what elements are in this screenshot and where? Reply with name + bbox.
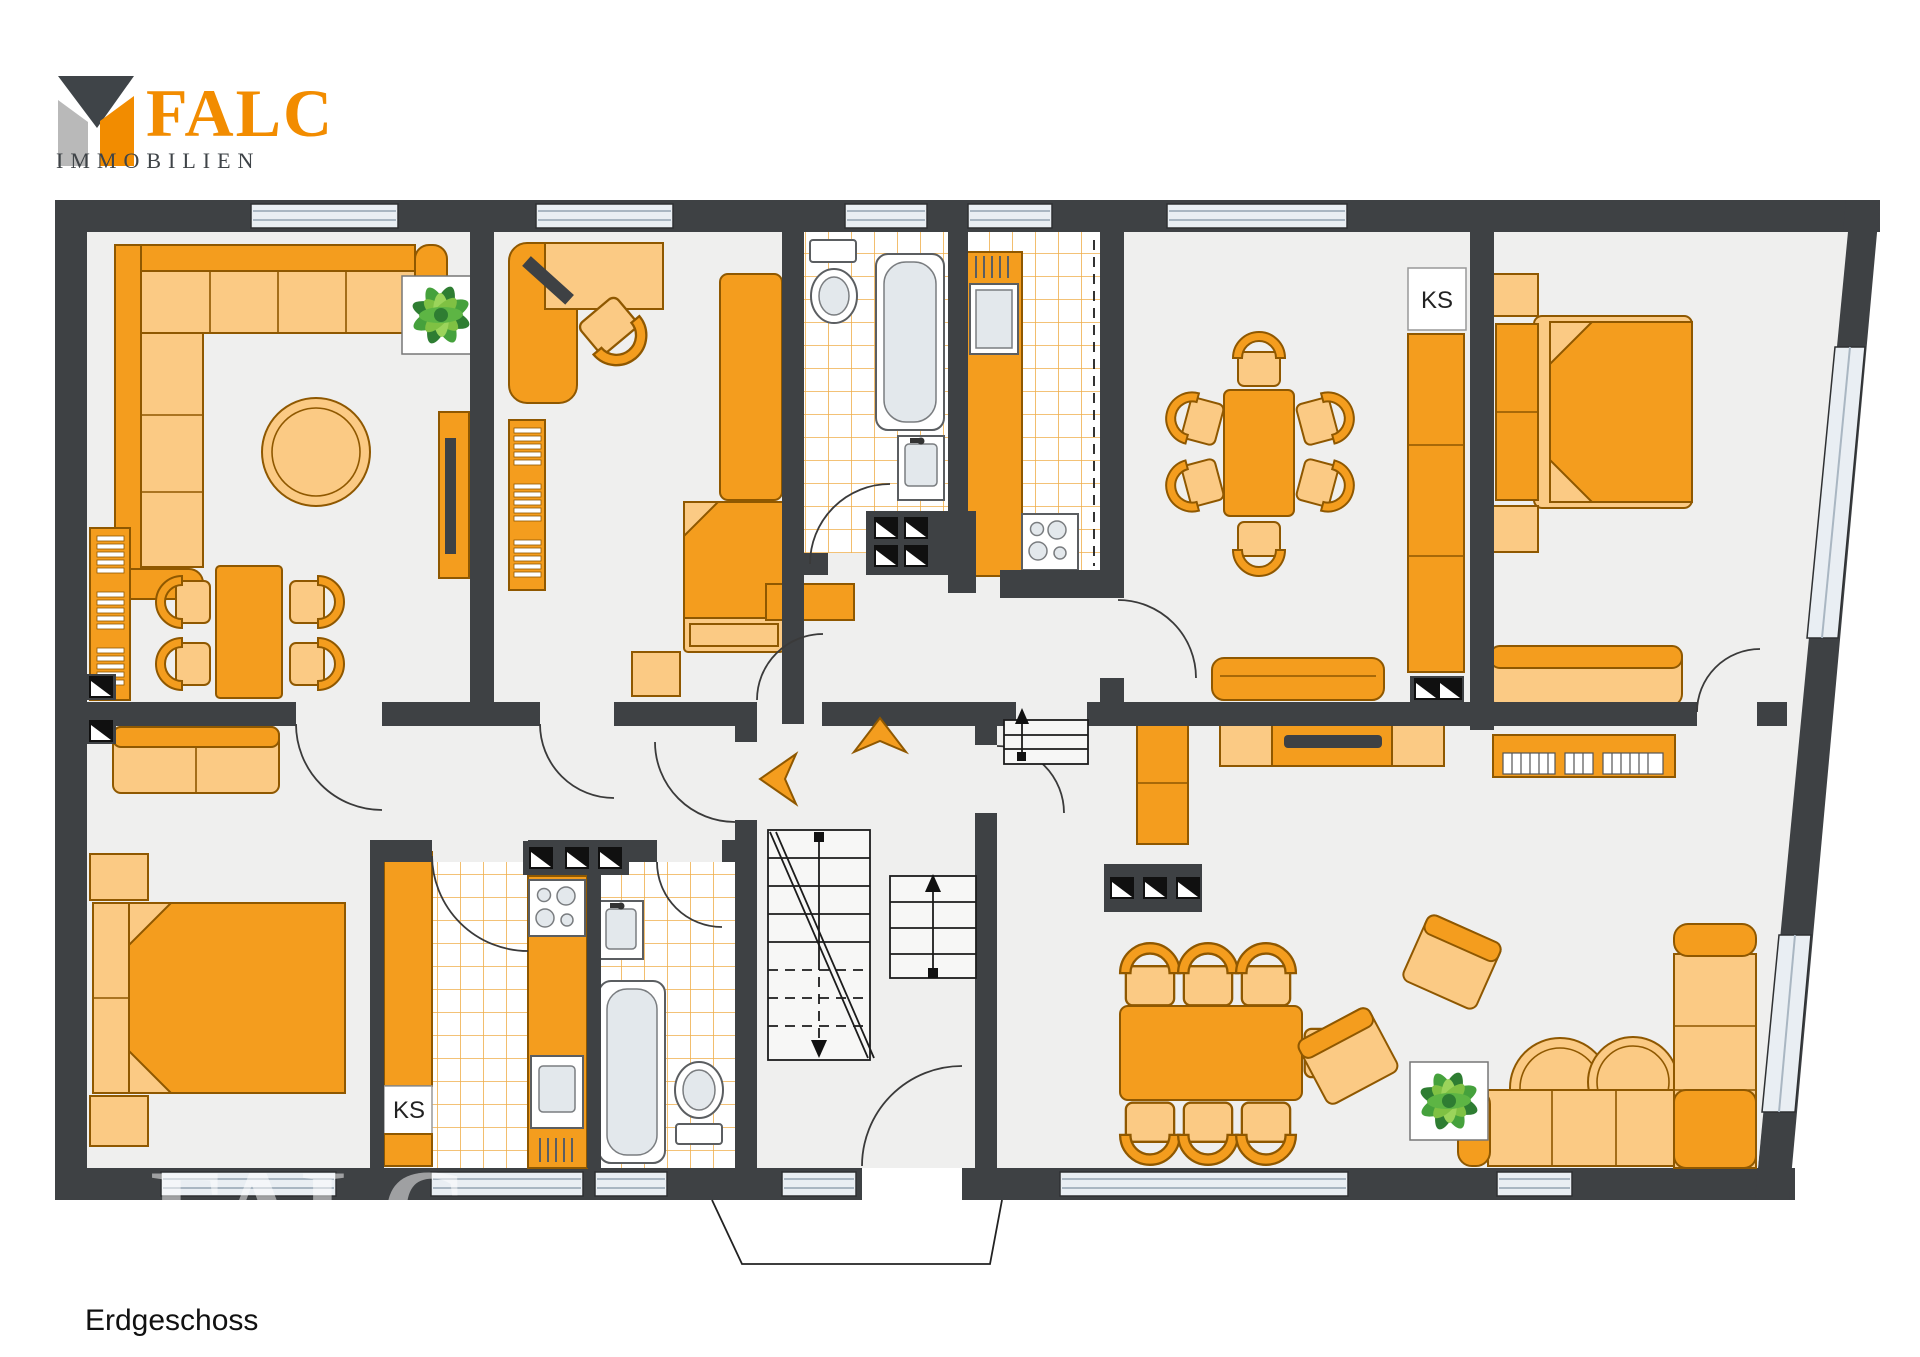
- window: [1060, 1172, 1348, 1196]
- hall-sideboard: [766, 584, 854, 620]
- entrance-porch: [712, 1200, 1002, 1264]
- wardrobe: [720, 274, 782, 500]
- falc-logo: FALC IMMOBILIEN: [56, 75, 334, 173]
- floorplan-canvas: FALC IMMOBILIEN: [0, 0, 1920, 1357]
- floor-label: Erdgeschoss: [85, 1304, 258, 1337]
- kitchen-cabinet: [384, 852, 432, 1086]
- stove-icon: [529, 880, 585, 936]
- kitchen-bottom-tiles: [432, 862, 528, 1168]
- floorplan-page: FALC IMMOBILIEN: [0, 0, 1920, 1357]
- window: [536, 204, 673, 228]
- dining-table-large: [1120, 1006, 1302, 1100]
- logo-subtitle-text: IMMOBILIEN: [56, 148, 260, 173]
- coffee-table: [262, 398, 370, 506]
- pillow: [690, 624, 778, 646]
- dining-bench: [1212, 658, 1384, 700]
- tv-icon: [445, 438, 456, 554]
- fridge-label-dining: KS: [1421, 287, 1453, 314]
- staircase-down: [768, 830, 874, 1060]
- nightstand: [90, 854, 148, 900]
- window: [845, 204, 927, 228]
- stove-icon: [1022, 514, 1078, 570]
- toilet-tank: [810, 240, 856, 262]
- logo-brand-text: FALC: [146, 75, 334, 151]
- nightstand: [1490, 274, 1538, 316]
- corner-sofa: [115, 245, 415, 271]
- plant-icon: [402, 276, 480, 354]
- fridge-label-kitchen: KS: [393, 1097, 425, 1124]
- nightstand: [90, 1096, 148, 1146]
- piano-keys: [1503, 753, 1663, 774]
- watermark-text: FALC: [150, 1145, 468, 1278]
- hallway-left: [113, 727, 279, 793]
- nightstand: [632, 652, 680, 696]
- corner-sofa-seat-left: [141, 333, 203, 567]
- toilet-tank: [676, 1124, 722, 1144]
- window: [1167, 204, 1347, 228]
- double-bed-mattress: [1550, 322, 1692, 502]
- staircase-up: [890, 874, 976, 978]
- tall-cabinet: [1408, 334, 1464, 672]
- plant-icon: [1410, 1062, 1488, 1140]
- tv-icon: [1284, 735, 1382, 748]
- nightstand: [1490, 506, 1538, 552]
- double-bed-mattress: [129, 903, 345, 1093]
- window: [782, 1172, 856, 1196]
- window: [968, 204, 1052, 228]
- corner-sofa-back: [115, 245, 141, 569]
- window: [595, 1172, 667, 1196]
- corner-sofa: [1488, 1090, 1680, 1166]
- window: [251, 204, 398, 228]
- window: [1497, 1172, 1572, 1196]
- dining-table-small: [216, 566, 282, 698]
- dining-table: [1224, 390, 1294, 516]
